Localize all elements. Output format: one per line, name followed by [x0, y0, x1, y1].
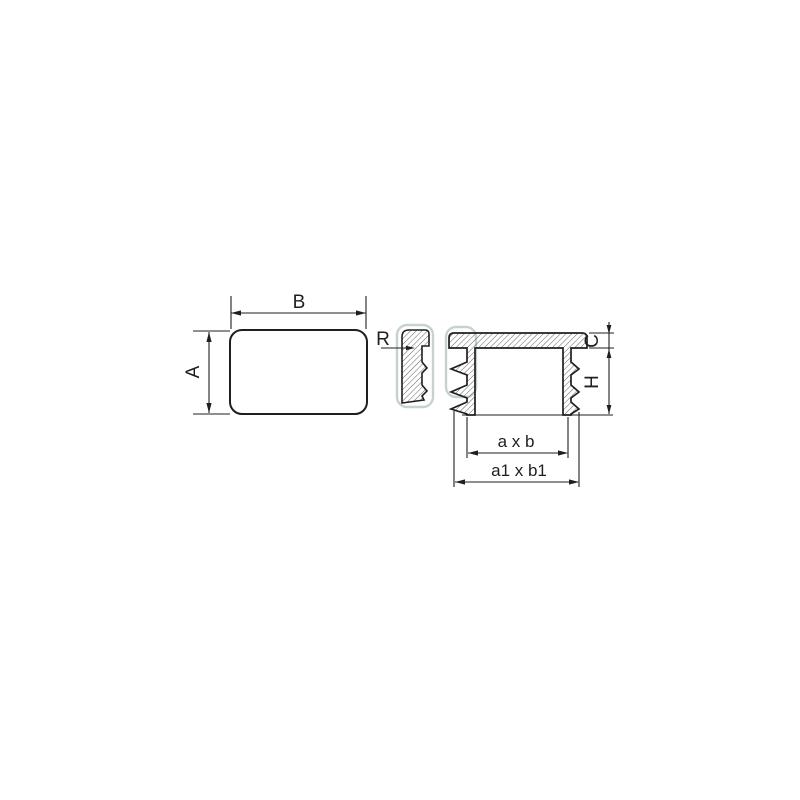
label-A: A [183, 365, 204, 378]
arrow-B-right [356, 310, 366, 315]
label-H: H [582, 375, 603, 389]
arrow-a1xb1-right [569, 479, 579, 484]
label-axb: a x b [498, 432, 535, 451]
plan-view: B A [183, 292, 367, 414]
plan-outline [230, 330, 367, 414]
label-R: R [376, 329, 390, 350]
arrow-axb-right [558, 450, 568, 455]
label-C: C [582, 334, 603, 348]
section-view: C H a x b a1 x b1 [446, 322, 614, 487]
label-B: B [293, 292, 306, 313]
arrow-A-top [206, 332, 211, 342]
end-cap-technical-drawing: B A R [0, 0, 800, 800]
drawing-canvas: B A R [0, 0, 800, 800]
arrow-axb-left [468, 450, 478, 455]
detail-section-shape [402, 330, 429, 403]
arrow-H-top [607, 349, 612, 358]
wall-detail-view: R [376, 325, 433, 407]
arrow-A-bottom [206, 403, 211, 413]
arrow-B-left [231, 310, 241, 315]
label-a1xb1: a1 x b1 [491, 461, 547, 480]
arrow-a1xb1-left [455, 479, 465, 484]
arrow-H-bottom [607, 405, 612, 414]
cap-section-shape [449, 333, 587, 415]
